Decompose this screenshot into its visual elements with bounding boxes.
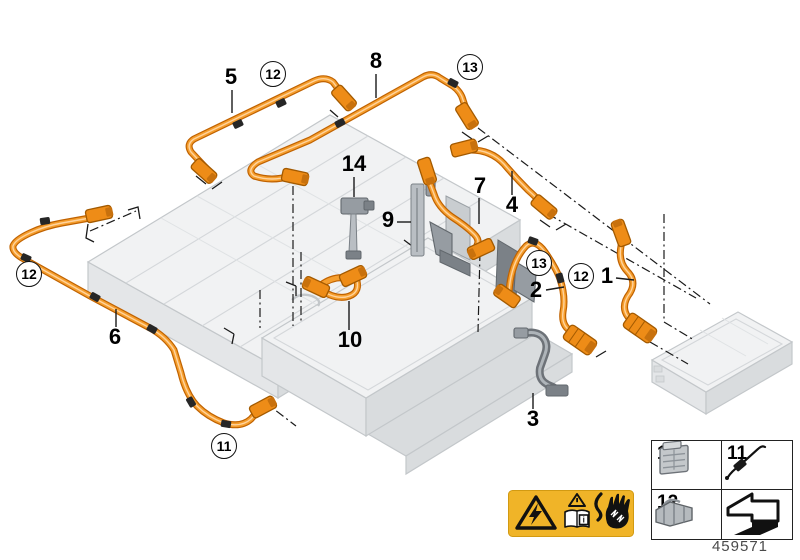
legend-table: 13 11 12 xyxy=(651,440,793,540)
callout-6[interactable]: 6 xyxy=(109,324,121,350)
callout-12[interactable]: 12 xyxy=(568,263,594,289)
cable-tie-icon xyxy=(722,441,768,483)
callout-3[interactable]: 3 xyxy=(527,406,539,432)
svg-text:i: i xyxy=(583,516,585,525)
callout-9[interactable]: 9 xyxy=(382,207,394,233)
legend-cell-12[interactable]: 12 xyxy=(652,490,722,539)
connector-plug-icon xyxy=(652,490,698,532)
callout-8[interactable]: 8 xyxy=(370,48,382,74)
callout-5[interactable]: 5 xyxy=(225,64,237,90)
callout-7[interactable]: 7 xyxy=(474,173,486,199)
callout-14[interactable]: 14 xyxy=(342,151,366,177)
right-battery-module xyxy=(652,312,792,414)
callout-12[interactable]: 12 xyxy=(260,61,286,87)
connector-housing-icon xyxy=(652,441,696,483)
callout-11[interactable]: 11 xyxy=(211,433,237,459)
parts-diagram-canvas: 5128131497413122112610113 13 11 12 xyxy=(0,0,800,560)
legend-cell-arrow xyxy=(722,490,792,539)
callout-4[interactable]: 4 xyxy=(506,192,518,218)
legend-cell-13[interactable]: 13 xyxy=(652,441,722,490)
callout-2[interactable]: 2 xyxy=(530,277,542,303)
legend-cell-11[interactable]: 11 xyxy=(722,441,792,490)
callout-12[interactable]: 12 xyxy=(16,261,42,287)
drawing-number: 459571 xyxy=(688,538,792,555)
callout-1[interactable]: 1 xyxy=(601,263,613,289)
callout-13[interactable]: 13 xyxy=(526,250,552,276)
callout-10[interactable]: 10 xyxy=(338,327,362,353)
direction-arrow-icon xyxy=(722,490,784,536)
cable-1 xyxy=(610,218,659,345)
callout-13[interactable]: 13 xyxy=(457,54,483,80)
